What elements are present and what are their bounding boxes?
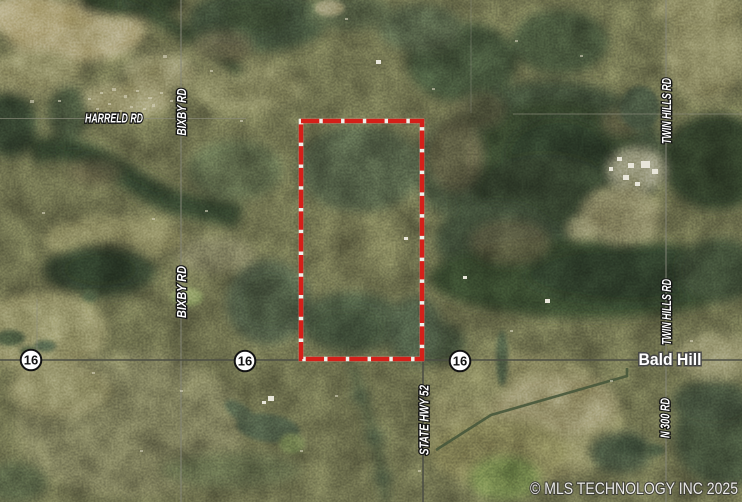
svg-text:Bald Hill: Bald Hill [639, 351, 702, 369]
svg-text:TWIN HILLS RD: TWIN HILLS RD [660, 78, 674, 144]
svg-text:N 300 RD: N 300 RD [659, 398, 673, 438]
svg-text:STATE HWY 52: STATE HWY 52 [418, 385, 432, 455]
svg-text:HARRELD RD: HARRELD RD [85, 112, 143, 126]
svg-text:16: 16 [453, 354, 467, 369]
svg-text:BIXBY RD: BIXBY RD [175, 266, 189, 318]
svg-text:BIXBY RD: BIXBY RD [175, 89, 189, 136]
svg-text:TWIN HILLS RD: TWIN HILLS RD [660, 279, 674, 345]
svg-text:16: 16 [238, 354, 252, 369]
svg-text:© MLS TECHNOLOGY INC 2025: © MLS TECHNOLOGY INC 2025 [530, 479, 738, 498]
svg-text:16: 16 [24, 353, 38, 368]
